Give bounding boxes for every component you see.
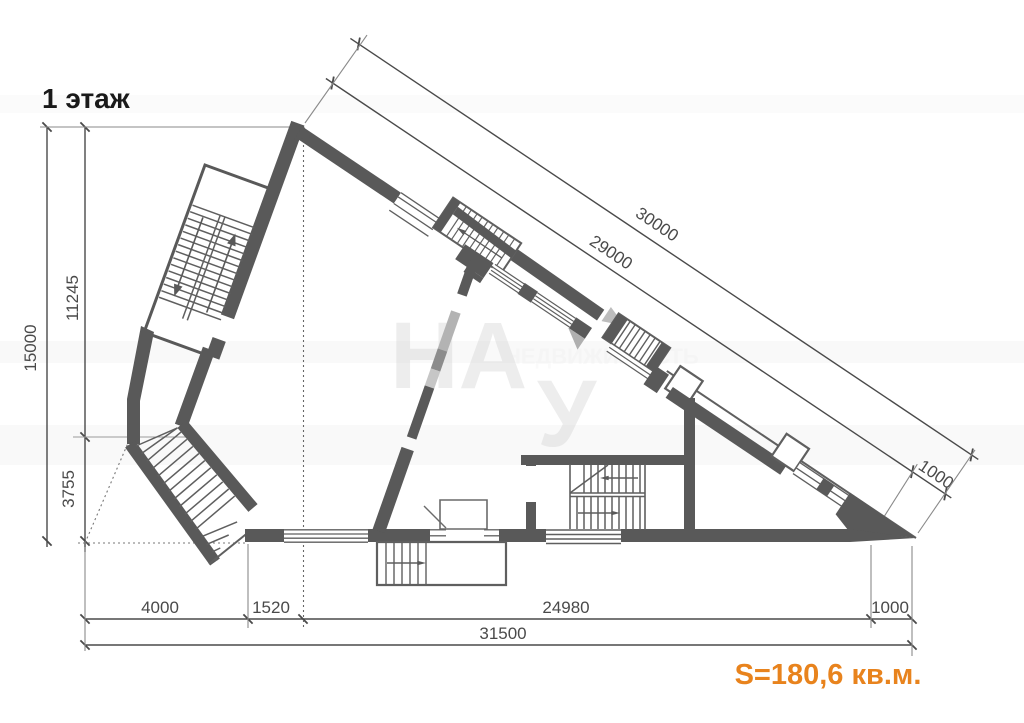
svg-text:4000: 4000 (141, 598, 179, 617)
svg-text:24980: 24980 (542, 598, 589, 617)
svg-text:S=180,6 кв.м.: S=180,6 кв.м. (735, 659, 922, 691)
svg-text:У: У (537, 361, 597, 467)
svg-text:1520: 1520 (252, 598, 290, 617)
svg-text:31500: 31500 (479, 624, 526, 643)
svg-text:1 этаж: 1 этаж (42, 83, 131, 114)
svg-text:11245: 11245 (63, 275, 82, 321)
svg-text:3755: 3755 (59, 470, 78, 508)
svg-text:15000: 15000 (21, 324, 40, 371)
svg-text:1000: 1000 (871, 598, 909, 617)
